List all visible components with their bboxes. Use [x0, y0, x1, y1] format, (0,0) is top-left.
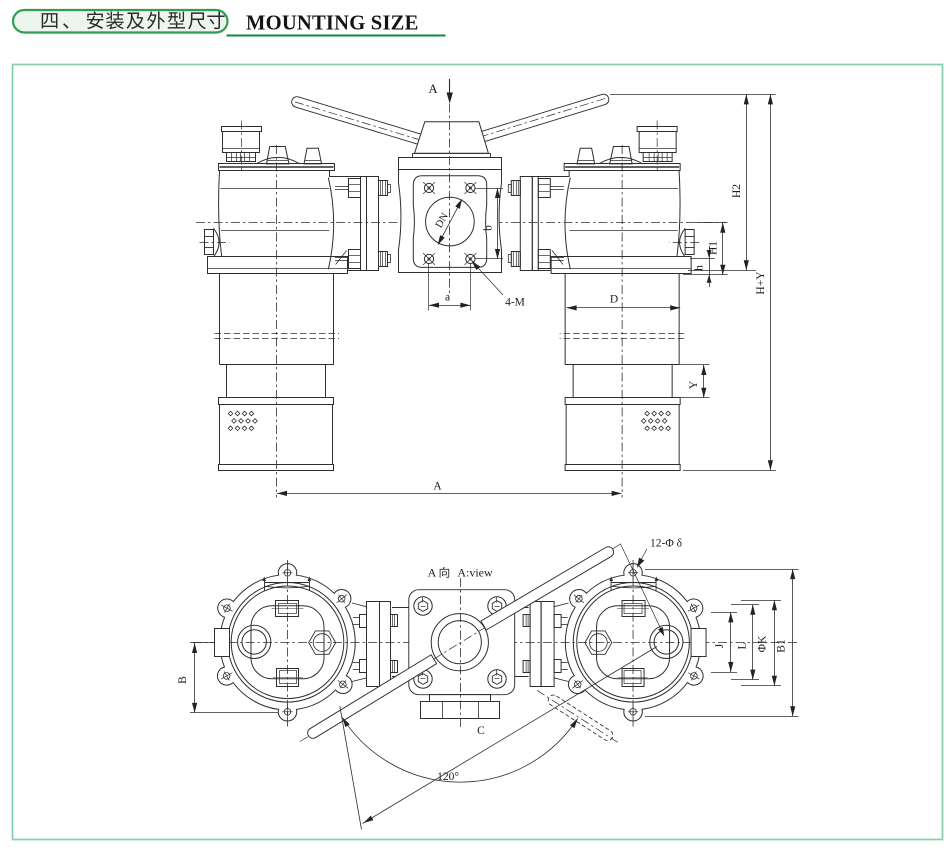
- svg-text:C: C: [477, 725, 485, 737]
- svg-text:H+Y: H+Y: [755, 271, 767, 295]
- svg-text:B1: B1: [776, 639, 788, 653]
- svg-text:12-Φ δ: 12-Φ δ: [650, 538, 682, 550]
- svg-text:J: J: [714, 643, 726, 648]
- svg-text:L: L: [737, 642, 749, 649]
- svg-text:A: A: [428, 566, 437, 580]
- svg-text:MOUNTING SIZE: MOUNTING SIZE: [246, 13, 419, 35]
- svg-text:120°: 120°: [437, 771, 459, 783]
- svg-text:ΦK: ΦK: [757, 635, 769, 652]
- svg-text:4-M: 4-M: [505, 297, 525, 309]
- svg-text:b: b: [483, 225, 495, 231]
- svg-text:Y: Y: [688, 380, 700, 389]
- svg-text:D: D: [610, 294, 618, 306]
- svg-text:A: A: [428, 82, 437, 96]
- svg-text:a: a: [445, 292, 450, 304]
- svg-text:h: h: [694, 265, 706, 271]
- svg-text:A:view: A:view: [457, 566, 493, 580]
- svg-text:A: A: [433, 481, 442, 493]
- svg-text:H2: H2: [731, 184, 743, 198]
- svg-text:B: B: [177, 676, 189, 684]
